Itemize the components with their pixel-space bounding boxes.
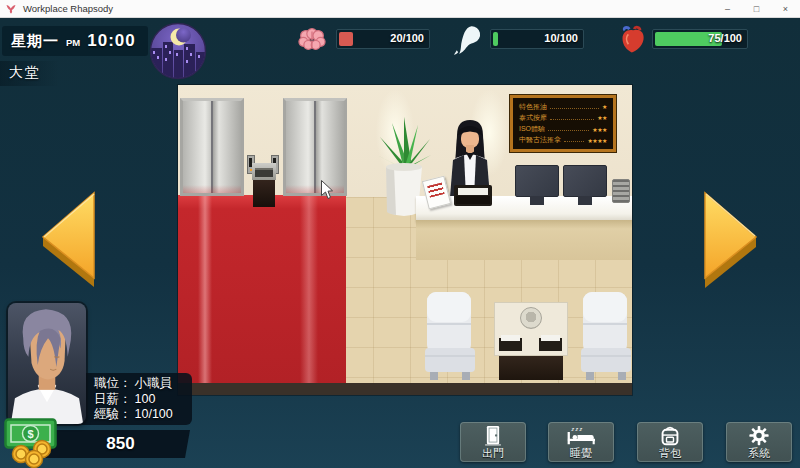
- clock-value: 10:00: [87, 31, 135, 51]
- system-label: 系統: [748, 447, 770, 459]
- trash-bin[interactable]: [252, 163, 276, 207]
- maximize-button[interactable]: □: [742, 0, 771, 17]
- position-row: 職位： 小職員: [94, 377, 186, 390]
- menu-item-stars: ★: [602, 103, 607, 110]
- exp-value: 10/100: [135, 408, 173, 421]
- coffee-table: [494, 302, 568, 380]
- desk-phone: [612, 179, 630, 203]
- armchair-right: [580, 290, 632, 382]
- sleep-label: 睡覺: [570, 447, 592, 459]
- table-tray: [499, 338, 522, 351]
- lobby-scene: 特色推油★ 泰式按摩★★ ISO體驗★★★ 中醫古法推拿★★★★: [178, 85, 632, 395]
- zzz-decoration: z z z: [570, 426, 582, 432]
- desk-monitor: [563, 165, 607, 197]
- document-tray: [454, 185, 492, 206]
- service-menu-board: 特色推油★ 泰式按摩★★ ISO體驗★★★ 中醫古法推拿★★★★: [510, 95, 616, 152]
- elevator-left[interactable]: [180, 98, 244, 196]
- menu-row: 中醫古法推拿★★★★: [519, 135, 607, 145]
- energy-bar-value: 20/100: [390, 30, 424, 47]
- menu-dotted-leader: [550, 114, 594, 120]
- salary-row: 日薪： 100: [94, 393, 186, 406]
- table-tray: [539, 338, 562, 351]
- spirit-bar-fill: [493, 32, 498, 46]
- menu-dotted-leader: [550, 103, 599, 109]
- energy-bar-fill: [339, 32, 353, 46]
- close-button[interactable]: ×: [771, 0, 800, 17]
- menu-row: ISO體驗★★★: [519, 124, 607, 134]
- health-bar: 75/100: [652, 29, 748, 49]
- menu-item-label: 中醫古法推拿: [519, 135, 561, 145]
- nav-right-button[interactable]: [701, 191, 763, 291]
- trash-bin-slot: [255, 168, 273, 177]
- dollar-sign: $: [27, 428, 33, 440]
- menu-item-label: ISO體驗: [519, 124, 545, 134]
- title-bar: Workplace Rhapsody – □ ×: [0, 0, 800, 18]
- exp-row: 經驗： 10/100: [94, 408, 186, 421]
- game-window: Workplace Rhapsody – □ ×: [0, 0, 800, 468]
- menu-dotted-leader: [564, 136, 584, 142]
- money-value: 850: [106, 434, 134, 454]
- go-out-label: 出門: [482, 447, 504, 459]
- player-info-panel: 職位： 小職員 日薪： 100 經驗： 10/100: [70, 373, 192, 425]
- backpack-icon: [659, 425, 681, 446]
- window-title: Workplace Rhapsody: [23, 3, 113, 14]
- health-bar-value: 75/100: [708, 30, 742, 47]
- bed-icon: z z z: [564, 425, 598, 446]
- armchair-left: [424, 290, 476, 382]
- door-icon: [482, 425, 504, 446]
- desk-monitor: [515, 165, 559, 197]
- menu-dotted-leader: [548, 125, 589, 131]
- salary-label: 日薪：: [94, 393, 132, 406]
- menu-row: 泰式按摩★★: [519, 113, 607, 123]
- moon-icon: [149, 22, 207, 80]
- minimize-button[interactable]: –: [713, 0, 742, 17]
- system-button[interactable]: 系統: [726, 422, 792, 462]
- elevator-right[interactable]: [283, 98, 347, 196]
- heart-icon: [617, 25, 649, 53]
- player-portrait[interactable]: [8, 303, 86, 424]
- backpack-label: 背包: [659, 447, 681, 459]
- menu-row: 特色推油★: [519, 102, 607, 112]
- trash-bin-body: [253, 180, 275, 207]
- meridiem-label: PM: [66, 37, 80, 48]
- menu-item-stars: ★★★: [592, 126, 607, 133]
- location-label: 大堂: [0, 61, 59, 86]
- go-out-button[interactable]: 出門: [460, 422, 526, 462]
- position-label: 職位：: [94, 377, 132, 390]
- time-display: 星期一 PM 10:00: [2, 26, 148, 56]
- reception-desk-front: [416, 220, 632, 260]
- player-avatar: [8, 303, 86, 424]
- mouse-cursor: [320, 179, 334, 200]
- position-value: 小職員: [135, 377, 173, 390]
- spirit-icon: [452, 24, 482, 55]
- money-icon: $: [4, 416, 62, 468]
- menu-item-stars: ★★★★: [587, 137, 607, 144]
- day-label: 星期一: [11, 32, 59, 51]
- carpet-sheen: [300, 195, 318, 385]
- app-icon: [5, 3, 17, 15]
- nav-left-button[interactable]: [36, 191, 98, 291]
- carpet-sheen: [198, 195, 212, 385]
- spirit-bar: 10/100: [490, 29, 584, 49]
- salary-value: 100: [135, 393, 156, 406]
- menu-item-label: 特色推油: [519, 102, 547, 112]
- energy-bar: 20/100: [336, 29, 430, 49]
- menu-item-stars: ★★: [597, 114, 607, 121]
- brain-icon: [296, 27, 328, 53]
- gear-icon: [748, 425, 770, 446]
- table-bowl: [520, 307, 542, 329]
- spirit-bar-value: 10/100: [544, 30, 578, 47]
- coffee-table-base: [499, 356, 563, 380]
- backpack-button[interactable]: 背包: [637, 422, 703, 462]
- floor-edge-strip: [178, 383, 632, 395]
- exp-label: 經驗：: [94, 408, 132, 421]
- sleep-button[interactable]: z z z 睡覺: [548, 422, 614, 462]
- menu-item-label: 泰式按摩: [519, 113, 547, 123]
